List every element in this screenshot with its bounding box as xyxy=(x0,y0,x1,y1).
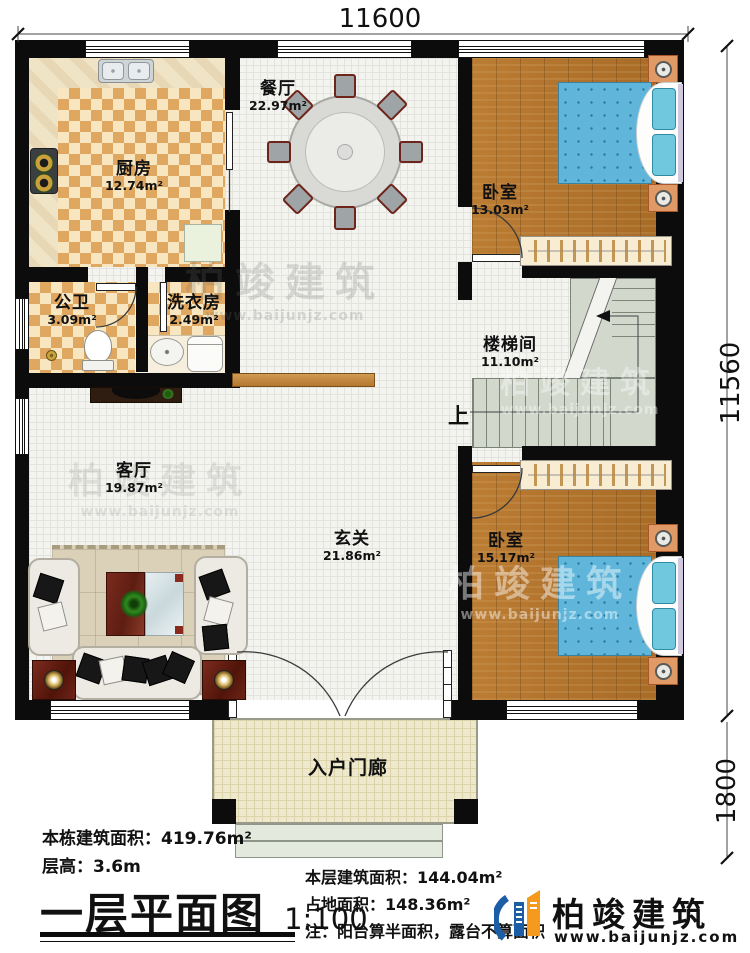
nightstand-lamp xyxy=(655,530,672,547)
wall-laundry-bottom xyxy=(15,373,240,388)
dim-tick xyxy=(721,40,733,52)
bedroom2-door-leaf xyxy=(472,465,522,473)
dim-tick xyxy=(721,710,733,722)
wardrobe-hangers xyxy=(534,240,666,262)
wall-bath-laundry xyxy=(136,282,148,372)
wall-bottom-4 xyxy=(638,700,684,720)
stair-up-label: 上 xyxy=(448,400,469,430)
title-underline-thin xyxy=(40,941,295,942)
window-living-bottom xyxy=(50,700,190,720)
stat-floor-area: 本层建筑面积：144.04m² xyxy=(305,864,502,888)
wall-bedroom2-left xyxy=(458,462,472,700)
room-label-porch: 入户门廊 xyxy=(290,758,406,779)
porch-step-1 xyxy=(235,824,443,841)
window-living-left xyxy=(15,398,29,455)
room-label-bathroom: 公卫3.09m² xyxy=(38,294,106,327)
dimension-top-width: 11600 xyxy=(325,4,435,34)
wall-top-1 xyxy=(15,40,85,58)
stat-floor-height: 层高：3.6m xyxy=(42,852,141,877)
window-bedroom1 xyxy=(458,40,645,58)
kitchen-sink-basin-1 xyxy=(102,62,124,80)
bed2-pillow xyxy=(652,608,676,650)
toilet-tank xyxy=(82,360,114,371)
room-label-kitchen: 厨房12.74m² xyxy=(94,160,174,193)
nightstand-lamp xyxy=(655,663,672,680)
room-label-foyer: 玄关21.86m² xyxy=(316,530,388,563)
toilet xyxy=(84,330,112,363)
window-kitchen xyxy=(85,40,190,58)
nightstand-lamp xyxy=(655,190,672,207)
stair-upper-treads xyxy=(612,279,655,337)
stove-burner-1 xyxy=(34,153,54,173)
dining-chair xyxy=(334,74,356,98)
stat-total-area: 本栋建筑面积：419.76m² xyxy=(42,824,252,849)
bathroom-door-leaf xyxy=(96,283,136,291)
stove-burner-2 xyxy=(34,173,54,193)
stair-run xyxy=(472,378,612,448)
brand-logo-icon xyxy=(494,886,548,948)
stair-landing xyxy=(610,378,656,448)
bed1-pillow xyxy=(652,88,676,130)
brand-website: www.baijunjz.com xyxy=(554,928,739,946)
bed2-headboard xyxy=(678,558,683,654)
stat-footprint: 占地面积：148.36m² xyxy=(305,891,470,915)
console-plant xyxy=(162,389,174,399)
floor-plan-canvas: 柏竣建筑 www.baijunjz.com 柏竣建筑 www.baijunjz.… xyxy=(0,0,750,953)
dim-tick xyxy=(721,852,733,864)
bedroom1-door-leaf xyxy=(472,254,522,262)
wall-top-3 xyxy=(412,40,458,58)
dining-chair xyxy=(399,141,423,163)
wall-bottom-2 xyxy=(190,700,230,720)
porch-pillar-left xyxy=(212,799,236,824)
bed1-pillow xyxy=(652,134,676,176)
wall-bedroom1-bottom-l xyxy=(458,262,472,300)
dining-chair xyxy=(334,206,356,230)
porch-step-2 xyxy=(235,841,443,858)
room-label-stairwell: 楼梯间11.10m² xyxy=(464,336,556,369)
dim-tick xyxy=(12,28,24,40)
wall-left-1 xyxy=(15,58,29,298)
hall-cabinet xyxy=(232,373,375,387)
window-bathroom xyxy=(15,298,29,350)
window-bedroom2 xyxy=(506,700,638,720)
wall-left-3 xyxy=(15,455,29,700)
bed1-headboard xyxy=(678,84,683,182)
floor-drain xyxy=(46,350,57,361)
kitchen-appliance xyxy=(184,224,222,262)
washing-machine xyxy=(187,336,223,372)
kitchen-sliding-door xyxy=(226,112,233,170)
room-label-laundry: 洗衣房2.49m² xyxy=(152,294,236,327)
wall-kitchen-bottom-1 xyxy=(15,267,88,282)
wall-top-2 xyxy=(190,40,277,58)
entry-door-leaf-right xyxy=(443,650,452,718)
room-label-bedroom1: 卧室13.03m² xyxy=(460,184,540,217)
dim-tick xyxy=(682,28,694,40)
wardrobe-hangers xyxy=(534,464,666,486)
table-plant xyxy=(120,590,148,618)
wall-bedroom2-top-l xyxy=(458,446,472,462)
room-label-living: 客厅19.87m² xyxy=(98,462,170,495)
bed2-pillow xyxy=(652,562,676,604)
dimension-porch-depth: 1800 xyxy=(712,738,742,844)
dining-chair xyxy=(267,141,291,163)
table-lamp xyxy=(214,670,234,690)
wall-bottom-3 xyxy=(450,700,506,720)
room-label-dining: 餐厅22.97m² xyxy=(232,80,324,113)
nightstand-lamp xyxy=(655,61,672,78)
kitchen-sink-basin-2 xyxy=(128,62,150,80)
coffee-table-corner-1 xyxy=(175,574,183,582)
title-underline-thick xyxy=(40,932,295,937)
room-label-bedroom2: 卧室15.17m² xyxy=(466,532,546,565)
dining-table-hub xyxy=(337,144,353,160)
porch-pillar-right xyxy=(454,799,478,824)
laundry-sink xyxy=(150,338,184,366)
table-lamp xyxy=(44,670,64,690)
wall-kitchen-right-2 xyxy=(225,210,240,267)
window-dining xyxy=(277,40,412,58)
wall-bottom-1 xyxy=(15,700,50,720)
cushion xyxy=(202,624,229,651)
dimension-right-height: 11560 xyxy=(716,328,746,438)
wall-kitchen-bottom-2 xyxy=(136,267,148,282)
coffee-table-corner-2 xyxy=(175,626,183,634)
